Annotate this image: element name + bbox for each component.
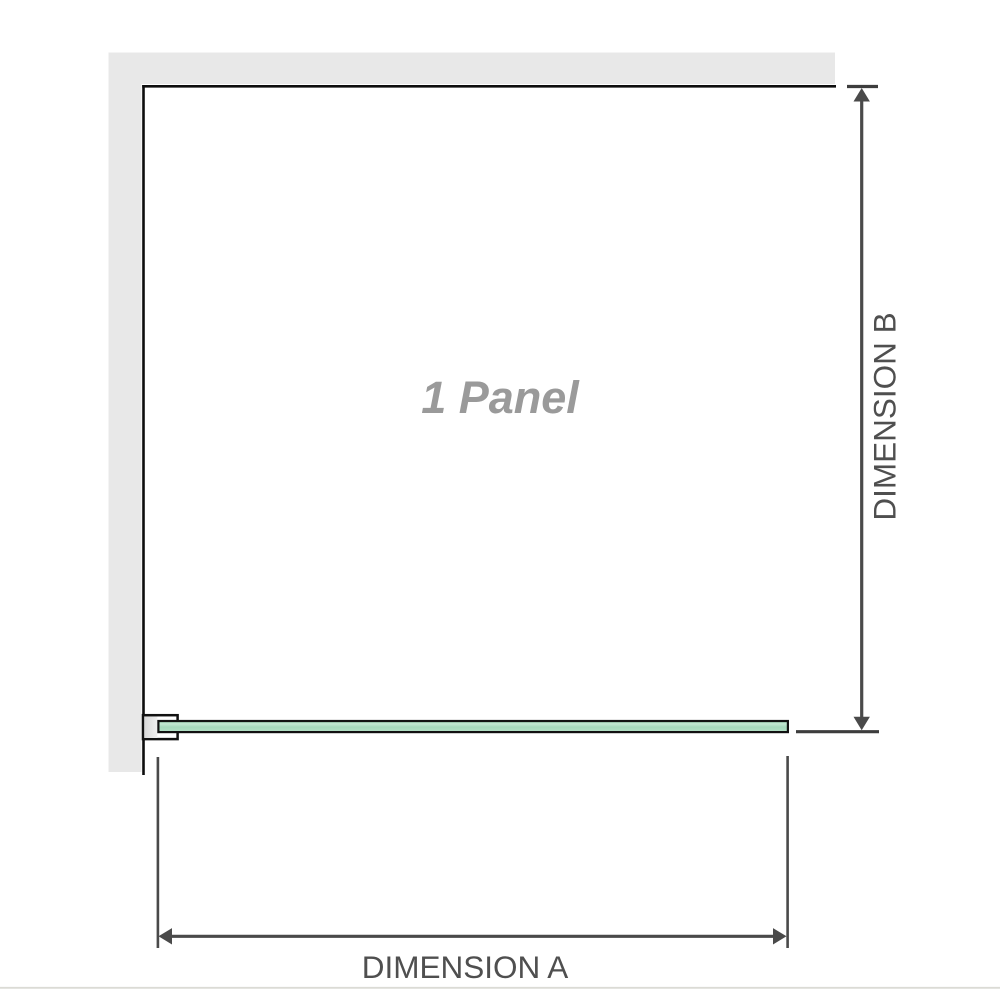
svg-text:DIMENSION B: DIMENSION B bbox=[867, 312, 903, 520]
svg-text:1 Panel: 1 Panel bbox=[421, 372, 580, 423]
svg-text:DIMENSION A: DIMENSION A bbox=[362, 949, 569, 985]
